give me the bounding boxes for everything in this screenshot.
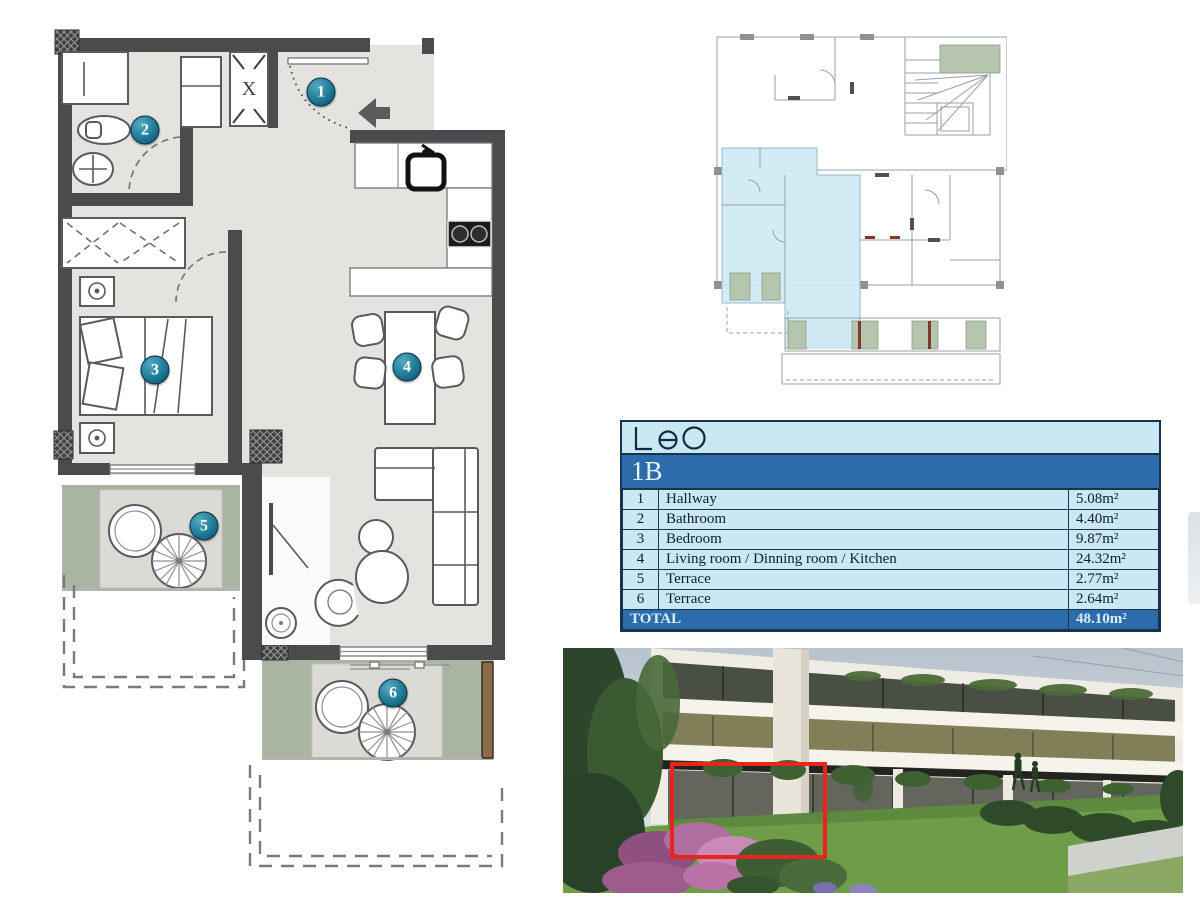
toilet-icon xyxy=(78,116,130,144)
overview-terrace-row xyxy=(782,318,1000,384)
table-row: 2 Bathroom 4.40m² xyxy=(623,510,1159,530)
unit-location-marker xyxy=(670,762,827,859)
badge-number: 4 xyxy=(403,358,411,376)
room-area: 24.32m² xyxy=(1069,550,1159,570)
parasol-icon xyxy=(152,534,206,588)
table-row: 1 Hallway 5.08m² xyxy=(623,490,1159,510)
room-number: 2 xyxy=(623,510,659,530)
render-illustration xyxy=(563,648,1183,893)
room-badge-3: 3 xyxy=(141,356,170,385)
chair-icon xyxy=(431,355,465,389)
room-area: 4.40m² xyxy=(1069,510,1159,530)
stove-icon xyxy=(448,221,491,247)
overview-roof-garden xyxy=(940,45,1000,73)
table-total-row: TOTAL 48.10m² xyxy=(623,610,1159,630)
unit-id: 1B xyxy=(622,455,1159,489)
room-name: Bathroom xyxy=(659,510,1069,530)
balcony-outline-below-terrace5 xyxy=(64,575,244,687)
badge-number: 3 xyxy=(151,361,159,379)
table-row: 4 Living room / Dinning room / Kitchen 2… xyxy=(623,550,1159,570)
room-area: 5.08m² xyxy=(1069,490,1159,510)
tv-panel xyxy=(269,503,273,575)
room-number: 4 xyxy=(623,550,659,570)
parasol-icon xyxy=(359,704,415,760)
room-name: Terrace xyxy=(659,590,1069,610)
washing-machine-icon xyxy=(266,608,296,638)
room-area: 2.77m² xyxy=(1069,570,1159,590)
listing-sheet: { "logo": { "text": "Leo" }, "unit": { "… xyxy=(0,0,1200,900)
logo-row xyxy=(622,422,1159,455)
svg-text:X: X xyxy=(242,78,257,100)
shower-icon xyxy=(62,52,128,104)
building-render-photo xyxy=(563,648,1183,893)
badge-number: 2 xyxy=(141,121,149,139)
room-number: 3 xyxy=(623,530,659,550)
room-name: Living room / Dinning room / Kitchen xyxy=(659,550,1069,570)
badge-number: 1 xyxy=(317,83,325,101)
room-badge-4: 4 xyxy=(393,353,422,382)
nightstand-icon xyxy=(80,423,114,453)
table-row: 3 Bedroom 9.87m² xyxy=(623,530,1159,550)
room-area: 9.87m² xyxy=(1069,530,1159,550)
room-number: 5 xyxy=(623,570,659,590)
room-area: 2.64m² xyxy=(1069,590,1159,610)
leo-logo xyxy=(631,424,719,452)
terrace-6 xyxy=(262,660,493,760)
room-name: Terrace xyxy=(659,570,1069,590)
hall-cabinet xyxy=(181,57,221,127)
chair-icon xyxy=(354,357,387,390)
unit-spec-card: 1B 1 Hallway 5.08m² 2 Bathroom 4.40m² 3 … xyxy=(620,420,1161,632)
overview-right-unit xyxy=(860,173,1000,285)
room-number: 6 xyxy=(623,590,659,610)
armchair-icon xyxy=(315,580,358,626)
total-label: TOTAL xyxy=(623,610,1069,630)
room-badge-5: 5 xyxy=(190,512,219,541)
room-number: 1 xyxy=(623,490,659,510)
table-row: 6 Terrace 2.64m² xyxy=(623,590,1159,610)
room-name: Bedroom xyxy=(659,530,1069,550)
terrace-5 xyxy=(62,485,240,591)
closet: X xyxy=(230,52,268,126)
room-badge-1: 1 xyxy=(307,78,336,107)
balcony-outline-below-terrace6 xyxy=(250,765,502,866)
wardrobe xyxy=(62,218,185,268)
cropped-edge-object xyxy=(1188,512,1200,604)
nightstand-icon xyxy=(80,277,114,306)
chair-icon xyxy=(351,313,386,348)
room-name: Hallway xyxy=(659,490,1069,510)
coffee-table-icon xyxy=(359,520,393,554)
overview-staircase xyxy=(905,73,990,135)
room-badge-6: 6 xyxy=(379,679,408,708)
coffee-table-icon xyxy=(356,551,408,603)
apartment-floor-plan: X xyxy=(50,25,515,885)
room-area-table: 1 Hallway 5.08m² 2 Bathroom 4.40m² 3 Bed… xyxy=(622,489,1159,630)
badge-number: 5 xyxy=(200,517,208,535)
room-badge-2: 2 xyxy=(131,116,160,145)
kitchen-peninsula xyxy=(350,268,492,296)
table-row: 5 Terrace 2.77m² xyxy=(623,570,1159,590)
building-floor-overview xyxy=(700,30,1007,400)
badge-number: 6 xyxy=(389,684,397,702)
sink-icon xyxy=(73,153,113,185)
total-area: 48.10m² xyxy=(1069,610,1159,630)
